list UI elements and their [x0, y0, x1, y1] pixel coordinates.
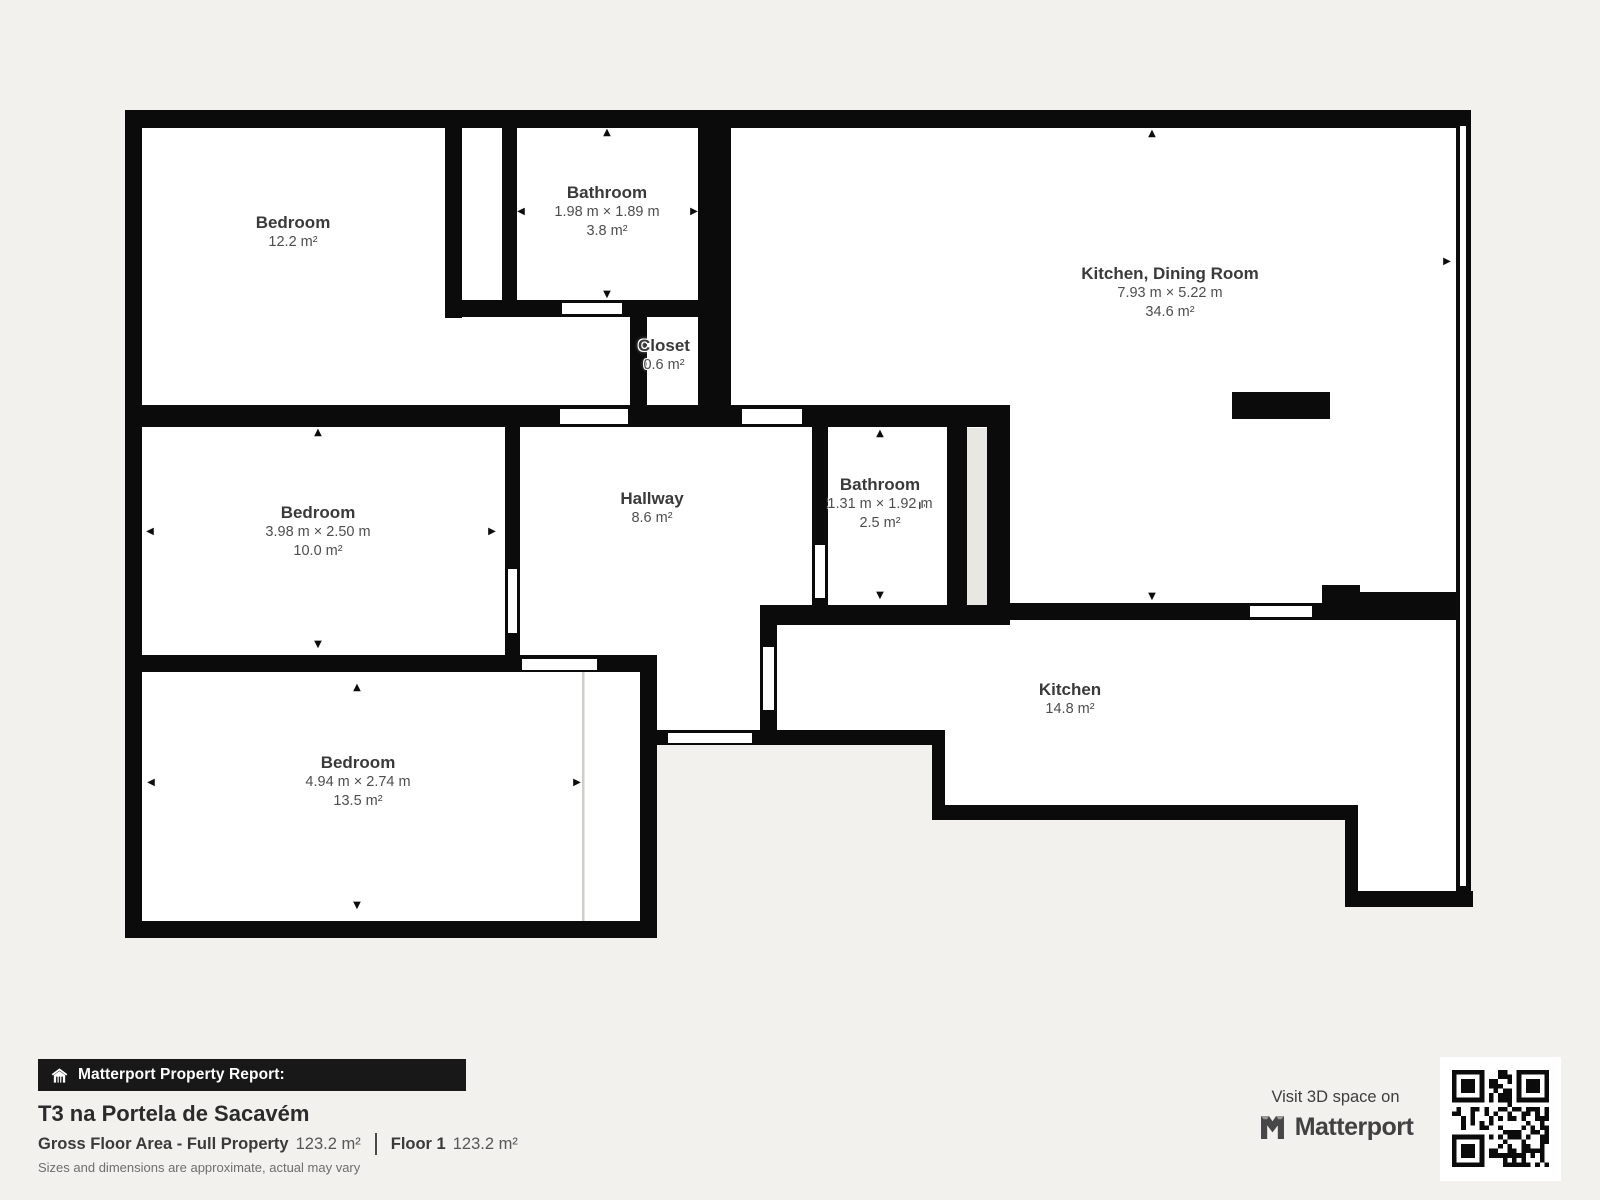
floor-value: 123.2 m²: [453, 1135, 518, 1154]
dim-arrow-right-icon: ▶: [1443, 257, 1451, 267]
wardrobe-line: [582, 672, 585, 921]
room-name: Bedroom: [265, 502, 370, 523]
room-label-kitchen-dining: Kitchen, Dining Room 7.93 m × 5.22 m 34.…: [1081, 263, 1259, 322]
dim-arrow-up-icon: ▲: [353, 683, 361, 693]
room-label-closet: Closet 0.6 m²: [638, 335, 690, 375]
room-dimensions: 1.31 m × 1.92 m: [827, 495, 932, 514]
dim-arrow-up-icon: ▲: [603, 128, 611, 138]
gross-floor-area-label: Gross Floor Area - Full Property: [38, 1135, 289, 1154]
floor-plan-drawing: [0, 0, 1600, 1200]
room-area: 8.6 m²: [620, 509, 683, 528]
room-area: 0.6 m²: [638, 356, 690, 375]
room-name: Bathroom: [554, 182, 659, 203]
dim-arrow-down-icon: ▼: [314, 640, 322, 650]
dim-arrow-up-icon: ▲: [876, 429, 884, 439]
room-label-bathroom-middle: Bathroom 1.31 m × 1.92 m 2.5 m²: [827, 474, 932, 533]
floor-plan-page: Bedroom 12.2 m² Bathroom 1.98 m × 1.89 m…: [0, 0, 1600, 1200]
floor-area-summary: Gross Floor Area - Full Property 123.2 m…: [38, 1133, 518, 1155]
room-label-bedroom-top-left: Bedroom 12.2 m²: [256, 212, 331, 252]
room-label-bathroom-top: Bathroom 1.98 m × 1.89 m 3.8 m²: [554, 182, 659, 241]
visit-3d-text: Visit 3D space on: [1271, 1088, 1399, 1107]
room-label-bedroom-bottom: Bedroom 4.94 m × 2.74 m 13.5 m²: [305, 752, 410, 811]
divider: [375, 1133, 377, 1155]
room-area: 12.2 m²: [256, 233, 331, 252]
dim-arrow-up-icon: ▲: [314, 428, 322, 438]
counter-island: [1232, 392, 1330, 419]
dim-arrow-down-icon: ▼: [353, 901, 361, 911]
dim-arrow-left-icon: ◀: [517, 207, 525, 217]
room-name: Closet: [638, 335, 690, 356]
dim-arrow-left-icon: ◀: [720, 258, 728, 268]
room-area: 14.8 m²: [1039, 700, 1101, 719]
room-dimensions: 3.98 m × 2.50 m: [265, 523, 370, 542]
dim-arrow-down-icon: ▼: [876, 591, 884, 601]
room-dimensions: 7.93 m × 5.22 m: [1081, 284, 1259, 303]
room-name: Bedroom: [256, 212, 331, 233]
visit-3d-block: Visit 3D space on Matterport: [1243, 1088, 1428, 1142]
room-area: 34.6 m²: [1081, 303, 1259, 322]
room-area: 13.5 m²: [305, 792, 410, 811]
qr-code: [1440, 1057, 1561, 1181]
room-name: Bedroom: [305, 752, 410, 773]
room-area: 2.5 m²: [827, 514, 932, 533]
house-icon: [51, 1067, 68, 1084]
room-dimensions: 4.94 m × 2.74 m: [305, 773, 410, 792]
room-label-kitchen: Kitchen 14.8 m²: [1039, 679, 1101, 719]
room-dimensions: 1.98 m × 1.89 m: [554, 203, 659, 222]
shaft-duct: [967, 428, 987, 605]
matterport-brand: Matterport: [1258, 1113, 1414, 1142]
dim-arrow-left-icon: ◀: [147, 778, 155, 788]
dim-arrow-down-icon: ▼: [603, 290, 611, 300]
room-label-hallway: Hallway 8.6 m²: [620, 488, 683, 528]
matterport-logo-icon: [1258, 1113, 1287, 1142]
banner-label: Matterport Property Report:: [78, 1066, 285, 1084]
room-label-bedroom-middle: Bedroom 3.98 m × 2.50 m 10.0 m²: [265, 502, 370, 561]
dim-arrow-right-icon: ▶: [573, 778, 581, 788]
gross-floor-area-value: 123.2 m²: [296, 1135, 361, 1154]
matterport-report-banner: Matterport Property Report:: [38, 1059, 466, 1091]
dim-arrow-right-icon: ▶: [488, 527, 496, 537]
room-name: Bathroom: [827, 474, 932, 495]
dim-arrow-right-icon: ▶: [690, 207, 698, 217]
floor-label: Floor 1: [391, 1135, 446, 1154]
disclaimer-text: Sizes and dimensions are approximate, ac…: [38, 1160, 360, 1175]
room-name: Hallway: [620, 488, 683, 509]
room-name: Kitchen: [1039, 679, 1101, 700]
dim-arrow-down-icon: ▼: [1148, 592, 1156, 602]
room-area: 3.8 m²: [554, 222, 659, 241]
dim-arrow-left-icon: ◀: [814, 501, 822, 511]
room-area: 10.0 m²: [265, 542, 370, 561]
property-title: T3 na Portela de Sacavém: [38, 1101, 309, 1127]
room-name: Kitchen, Dining Room: [1081, 263, 1259, 284]
matterport-wordmark: Matterport: [1295, 1113, 1414, 1142]
dim-arrow-left-icon: ◀: [146, 527, 154, 537]
dim-arrow-up-icon: ▲: [1148, 129, 1156, 139]
